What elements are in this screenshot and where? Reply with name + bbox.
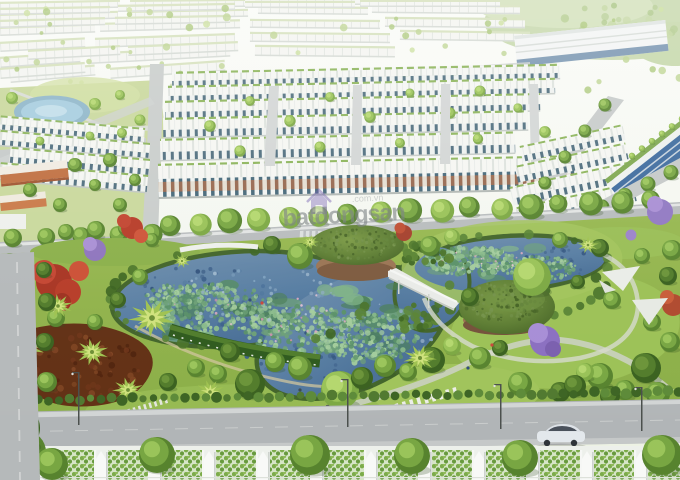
svg-text:.com.vn: .com.vn <box>352 192 384 204</box>
